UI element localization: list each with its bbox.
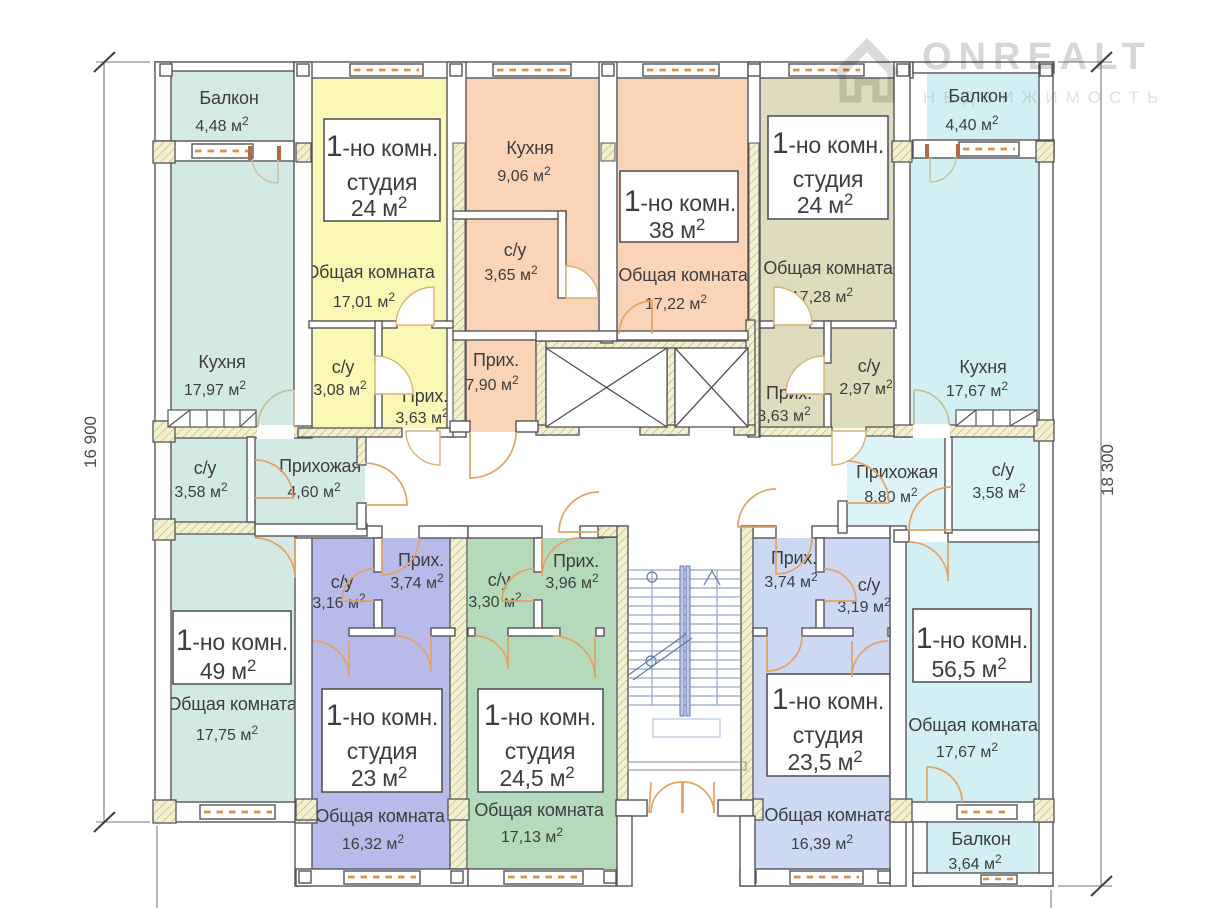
svg-text:3,74 м2: 3,74 м2	[390, 571, 444, 592]
svg-text:4,40 м2: 4,40 м2	[945, 113, 999, 134]
svg-text:4,60 м2: 4,60 м2	[287, 480, 341, 501]
svg-text:Общая комната: Общая комната	[305, 262, 436, 282]
svg-text:Общая комната: Общая комната	[908, 715, 1039, 735]
svg-text:1-но комн.: 1-но комн.	[772, 683, 884, 716]
svg-text:4,48 м2: 4,48 м2	[195, 114, 249, 135]
svg-text:1-но комн.: 1-но комн.	[772, 127, 884, 160]
svg-text:Общая комната: Общая комната	[315, 806, 446, 826]
svg-text:Общая комната: Общая комната	[764, 805, 895, 825]
svg-text:1-но комн.: 1-но комн.	[326, 130, 438, 163]
svg-text:7,90 м2: 7,90 м2	[465, 373, 519, 394]
svg-text:с/у: с/у	[194, 458, 217, 478]
svg-text:16,39 м2: 16,39 м2	[791, 832, 853, 853]
svg-text:17,97 м2: 17,97 м2	[184, 378, 246, 399]
svg-text:16,32 м2: 16,32 м2	[342, 832, 404, 853]
svg-text:1-но комн.: 1-но комн.	[484, 699, 596, 732]
svg-text:студия: студия	[505, 738, 576, 764]
svg-text:3,96 м2: 3,96 м2	[545, 571, 599, 592]
svg-text:Кухня: Кухня	[506, 138, 553, 158]
svg-text:1-но комн.: 1-но комн.	[916, 622, 1028, 655]
svg-text:17,67 м2: 17,67 м2	[936, 740, 998, 761]
svg-text:3,19 м2: 3,19 м2	[837, 595, 891, 616]
svg-text:с/у: с/у	[332, 357, 355, 377]
svg-text:с/у: с/у	[504, 240, 527, 260]
svg-text:Общая комната: Общая комната	[763, 258, 894, 278]
svg-text:3,08 м2: 3,08 м2	[313, 378, 367, 399]
svg-text:3,58 м2: 3,58 м2	[972, 481, 1026, 502]
svg-text:17,75 м2: 17,75 м2	[196, 723, 258, 744]
svg-text:студия: студия	[793, 166, 864, 192]
svg-text:3,63 м2: 3,63 м2	[395, 406, 449, 427]
svg-text:с/у: с/у	[858, 356, 881, 376]
svg-text:Балкон: Балкон	[199, 88, 258, 108]
svg-text:1-но комн.: 1-но комн.	[624, 185, 736, 218]
svg-text:18 300: 18 300	[1098, 444, 1117, 496]
svg-text:Кухня: Кухня	[198, 352, 245, 372]
svg-text:17,13 м2: 17,13 м2	[501, 825, 563, 846]
svg-text:9,06 м2: 9,06 м2	[497, 164, 551, 185]
svg-text:3,64 м2: 3,64 м2	[948, 852, 1002, 873]
svg-text:ONREALT: ONREALT	[922, 36, 1152, 78]
svg-text:23,5 м2: 23,5 м2	[787, 747, 862, 775]
svg-text:17,22 м2: 17,22 м2	[645, 292, 707, 313]
svg-text:с/у: с/у	[331, 572, 354, 592]
svg-text:с/у: с/у	[858, 575, 881, 595]
svg-text:с/у: с/у	[488, 570, 511, 590]
svg-text:Балкон: Балкон	[951, 829, 1010, 849]
svg-text:1-но комн.: 1-но комн.	[176, 624, 288, 657]
svg-text:Прих.: Прих.	[553, 551, 599, 571]
svg-text:студия: студия	[347, 738, 418, 764]
svg-text:НЕДВИЖИМОСТЬ: НЕДВИЖИМОСТЬ	[923, 88, 1166, 107]
svg-text:Прихожая: Прихожая	[856, 462, 938, 482]
svg-text:3,74 м2: 3,74 м2	[764, 570, 818, 591]
svg-text:Общая комната: Общая комната	[474, 800, 605, 820]
svg-text:2,97 м2: 2,97 м2	[839, 377, 893, 398]
svg-text:студия: студия	[793, 722, 864, 748]
svg-text:Прихожая: Прихожая	[279, 456, 361, 476]
svg-text:3,65 м2: 3,65 м2	[484, 263, 538, 284]
svg-text:3,58 м2: 3,58 м2	[174, 480, 228, 501]
svg-text:16 900: 16 900	[81, 416, 100, 468]
svg-text:24,5 м2: 24,5 м2	[499, 763, 574, 791]
svg-text:Общая комната: Общая комната	[167, 694, 298, 714]
svg-text:1-но комн.: 1-но комн.	[326, 699, 438, 732]
svg-text:Общая комната: Общая комната	[618, 265, 749, 285]
svg-text:Прих.: Прих.	[473, 350, 519, 370]
svg-text:56,5 м2: 56,5 м2	[931, 654, 1006, 682]
svg-text:студия: студия	[347, 169, 418, 195]
svg-text:Кухня: Кухня	[959, 357, 1006, 377]
svg-text:3,63 м2: 3,63 м2	[757, 404, 811, 425]
svg-text:17,01 м2: 17,01 м2	[333, 290, 395, 311]
svg-text:с/у: с/у	[992, 460, 1015, 480]
svg-text:17,67 м2: 17,67 м2	[946, 379, 1008, 400]
